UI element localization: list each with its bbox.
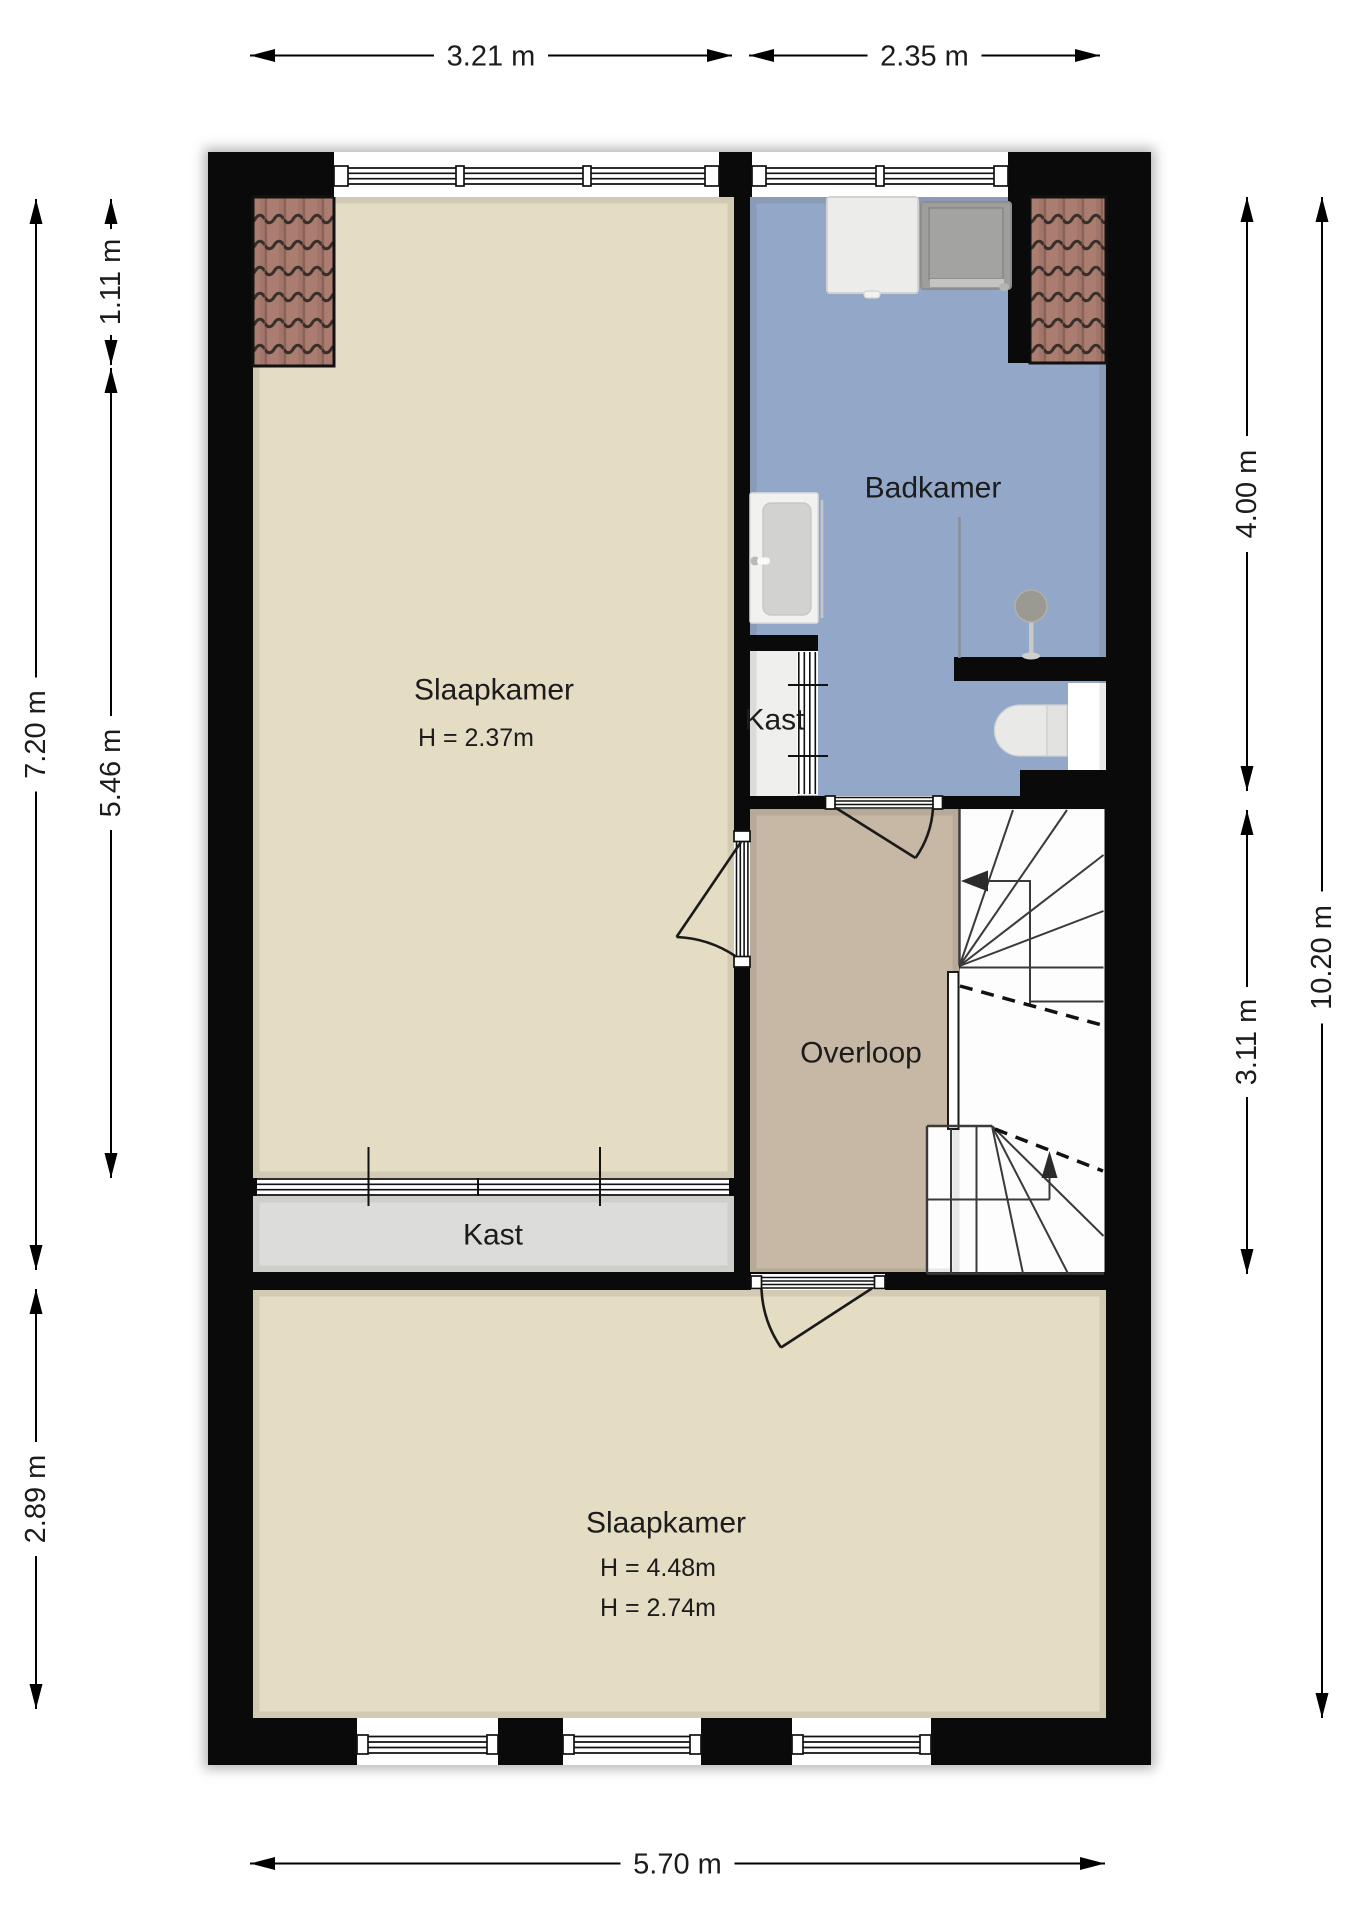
svg-text:10.20 m: 10.20 m <box>1306 905 1338 1010</box>
svg-text:5.70 m: 5.70 m <box>633 1849 722 1881</box>
svg-text:Overloop: Overloop <box>800 1037 922 1070</box>
svg-text:H = 2.37m: H = 2.37m <box>418 724 534 752</box>
svg-text:Badkamer: Badkamer <box>865 472 1002 505</box>
svg-text:Kast: Kast <box>463 1219 524 1252</box>
svg-text:5.46 m: 5.46 m <box>95 729 127 818</box>
svg-text:H = 2.74m: H = 2.74m <box>600 1594 716 1622</box>
svg-text:2.89 m: 2.89 m <box>20 1455 52 1544</box>
svg-text:H = 4.48m: H = 4.48m <box>600 1554 716 1582</box>
svg-text:Slaapkamer: Slaapkamer <box>586 1507 746 1540</box>
svg-text:2.35 m: 2.35 m <box>880 41 969 73</box>
svg-text:1.11 m: 1.11 m <box>95 239 127 326</box>
svg-text:7.20 m: 7.20 m <box>20 690 52 779</box>
svg-text:Slaapkamer: Slaapkamer <box>414 674 574 707</box>
svg-text:Kast: Kast <box>744 704 805 737</box>
svg-text:3.21 m: 3.21 m <box>447 41 536 73</box>
svg-text:4.00 m: 4.00 m <box>1231 450 1263 539</box>
svg-text:3.11 m: 3.11 m <box>1231 999 1263 1086</box>
